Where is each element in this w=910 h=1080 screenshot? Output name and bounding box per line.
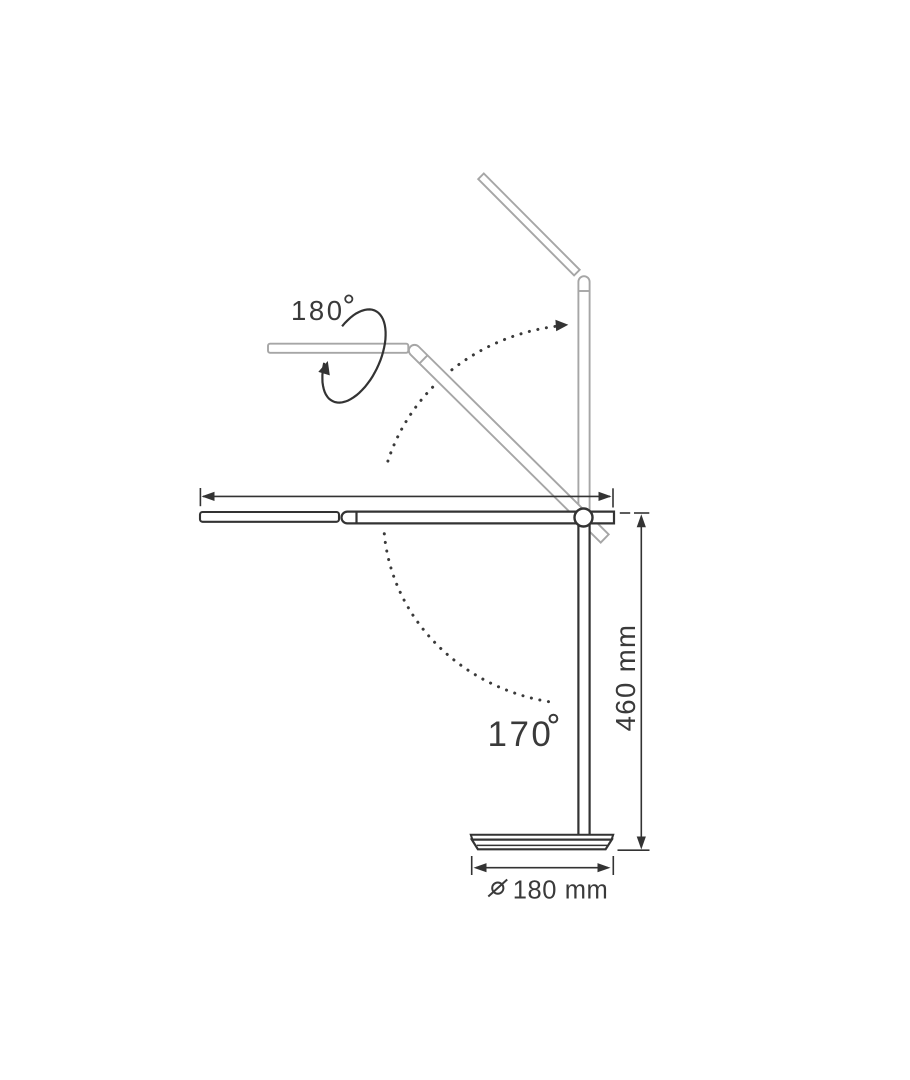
svg-text:170: 170 [488,715,554,754]
svg-text:180 mm: 180 mm [513,876,609,904]
svg-text:180: 180 [291,295,345,326]
svg-text:460 mm: 460 mm [610,624,641,732]
